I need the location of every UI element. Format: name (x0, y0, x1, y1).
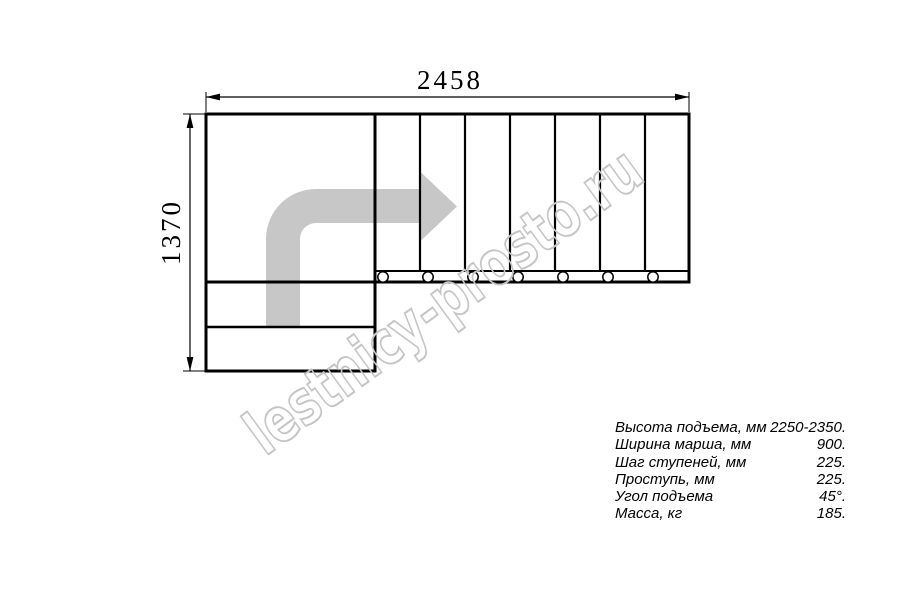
spec-row: Шаг ступеней, мм 225. (615, 454, 846, 471)
dimension-arrowhead-right (675, 94, 689, 101)
stair-drawing-page: 2458 1370 lestnicy-prosto.ru Высота подъ… (0, 0, 900, 600)
spec-label: Шаг ступеней, мм (615, 454, 746, 471)
spec-row: Масса, кг 185. (615, 505, 846, 522)
dimension-height: 1370 (156, 114, 206, 371)
spec-row: Высота подъема, мм 2250-2350. (615, 419, 846, 436)
spec-row: Угол подъема 45°. (615, 488, 846, 505)
dimension-width: 2458 (206, 65, 689, 112)
baluster-circle (648, 272, 658, 282)
dimension-arrowhead-top (187, 114, 194, 128)
spec-label: Ширина марша, мм (615, 436, 751, 453)
spec-label: Проступь, мм (615, 471, 715, 488)
spec-table: Высота подъема, мм 2250-2350. Ширина мар… (615, 419, 846, 523)
dimension-width-label: 2458 (417, 65, 483, 95)
spec-row: Ширина марша, мм 900. (615, 436, 846, 453)
dimension-arrowhead-left (206, 94, 220, 101)
spec-value: 2250-2350. (770, 419, 846, 436)
dimension-height-label: 1370 (156, 199, 186, 265)
spec-label: Масса, кг (615, 505, 682, 522)
baluster-circle (378, 272, 388, 282)
spec-value: 185. (817, 505, 846, 522)
spec-row: Проступь, мм 225. (615, 471, 846, 488)
spec-value: 45°. (819, 488, 846, 505)
dimension-arrowhead-bottom (187, 357, 194, 371)
baluster-circle (558, 272, 568, 282)
spec-value: 900. (817, 436, 846, 453)
spec-label: Высота подъема, мм (615, 419, 767, 436)
spec-label: Угол подъема (615, 488, 713, 505)
spec-value: 225. (817, 454, 846, 471)
baluster-circle (603, 272, 613, 282)
spec-value: 225. (817, 471, 846, 488)
